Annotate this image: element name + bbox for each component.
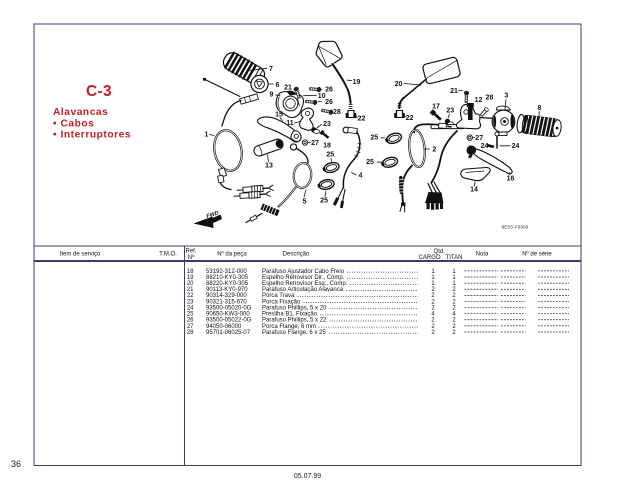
svg-text:2: 2 — [431, 330, 435, 336]
svg-text:Alavancas: Alavancas — [53, 107, 108, 118]
svg-text:28: 28 — [333, 109, 341, 116]
svg-text:Nº: Nº — [188, 254, 195, 261]
svg-text:20: 20 — [395, 81, 403, 88]
svg-text:1: 1 — [452, 269, 456, 275]
svg-text:1: 1 — [431, 275, 435, 281]
svg-text:Item de serviço: Item de serviço — [60, 252, 101, 258]
svg-text:Nº de série: Nº de série — [522, 251, 552, 258]
svg-text:2: 2 — [452, 318, 456, 324]
svg-text:2: 2 — [452, 305, 456, 311]
svg-text:4: 4 — [358, 172, 362, 179]
svg-text:90650-KW3-000: 90650-KW3-000 — [206, 312, 250, 318]
svg-text:27: 27 — [187, 324, 194, 330]
svg-text:Parafuso Articulação Alavanca: Parafuso Articulação Alavanca — [262, 287, 344, 293]
svg-text:88220-KY0-305: 88220-KY0-305 — [206, 281, 249, 287]
svg-text:13: 13 — [265, 163, 273, 170]
svg-text:23: 23 — [446, 108, 454, 115]
svg-text:3: 3 — [504, 93, 508, 100]
svg-text:21: 21 — [284, 85, 292, 92]
svg-text:95701-06025-07: 95701-06025-07 — [206, 330, 251, 336]
svg-text:Nº da peça: Nº da peça — [217, 251, 247, 258]
svg-text:93500-05022-0G: 93500-05022-0G — [206, 318, 252, 324]
svg-text:25: 25 — [366, 159, 374, 166]
svg-text:1: 1 — [452, 281, 456, 287]
svg-text:4: 4 — [452, 312, 456, 318]
svg-text:11: 11 — [286, 120, 294, 127]
svg-text:2: 2 — [452, 324, 456, 330]
svg-text:2: 2 — [431, 318, 435, 324]
svg-text:25: 25 — [187, 312, 194, 318]
svg-text:17: 17 — [432, 103, 440, 110]
svg-text:20: 20 — [187, 281, 194, 287]
svg-text:53192-312-000: 53192-312-000 — [206, 269, 247, 275]
svg-text:• Interruptores: • Interruptores — [53, 130, 131, 141]
svg-text:2: 2 — [431, 293, 435, 299]
svg-text:8E03-F0300: 8E03-F0300 — [502, 225, 529, 230]
svg-text:25: 25 — [370, 135, 378, 142]
svg-text:Parafuso Ajustador Cabo Freio: Parafuso Ajustador Cabo Freio — [262, 269, 345, 275]
svg-text:14: 14 — [470, 187, 478, 194]
svg-text:27: 27 — [475, 135, 483, 142]
svg-text:26: 26 — [325, 86, 333, 93]
svg-text:2: 2 — [452, 293, 456, 299]
svg-text:23: 23 — [323, 121, 331, 128]
svg-text:Porca Trava: Porca Trava — [262, 293, 295, 299]
svg-text:2: 2 — [452, 287, 456, 293]
svg-text:25: 25 — [320, 198, 328, 205]
svg-text:Parafuso Phillips, 5 x 22: Parafuso Phillips, 5 x 22 — [262, 318, 327, 324]
svg-text:1: 1 — [452, 275, 456, 281]
svg-text:1: 1 — [431, 281, 435, 287]
svg-text:24: 24 — [187, 305, 194, 311]
svg-text:7: 7 — [269, 66, 273, 73]
svg-text:T.M.O.: T.M.O. — [159, 252, 177, 258]
svg-text:23: 23 — [187, 299, 194, 305]
svg-text:CARGO: CARGO — [419, 255, 441, 261]
svg-text:36: 36 — [11, 459, 21, 469]
svg-text:19: 19 — [187, 275, 194, 281]
svg-text:6: 6 — [276, 82, 280, 89]
svg-text:Presilha B1, Fixação: Presilha B1, Fixação — [262, 312, 318, 318]
svg-text:TITAN: TITAN — [446, 255, 463, 261]
svg-text:2: 2 — [452, 330, 456, 336]
svg-text:94050-06000: 94050-06000 — [206, 324, 242, 330]
svg-text:Ref.: Ref. — [185, 249, 196, 255]
svg-text:22: 22 — [406, 115, 414, 122]
svg-text:Espelho Retrovisor Dir., Comp.: Espelho Retrovisor Dir., Comp. — [262, 275, 345, 281]
svg-text:2: 2 — [452, 299, 456, 305]
svg-text:24: 24 — [481, 143, 489, 150]
svg-text:88210-KY0-305: 88210-KY0-305 — [206, 275, 249, 281]
svg-text:15: 15 — [275, 111, 283, 118]
svg-text:12: 12 — [475, 97, 483, 104]
svg-text:21: 21 — [450, 88, 458, 95]
svg-text:90321-315-670: 90321-315-670 — [206, 299, 247, 305]
svg-text:Parafuso Flange, 6 x 25: Parafuso Flange, 6 x 25 — [262, 330, 326, 336]
svg-text:22: 22 — [187, 293, 194, 299]
svg-text:2: 2 — [431, 305, 435, 311]
svg-text:18: 18 — [323, 143, 331, 150]
svg-text:19: 19 — [353, 79, 361, 86]
svg-text:8: 8 — [537, 105, 541, 112]
svg-text:2: 2 — [432, 146, 436, 153]
svg-text:Nota: Nota — [476, 252, 489, 258]
svg-text:25: 25 — [326, 152, 334, 159]
svg-text:26: 26 — [187, 318, 194, 324]
svg-text:93500-05020-0G: 93500-05020-0G — [206, 305, 252, 311]
svg-text:Porca Flange, 6 mm: Porca Flange, 6 mm — [262, 324, 316, 330]
svg-text:Parafuso Phillips, 5 x 20: Parafuso Phillips, 5 x 20 — [262, 305, 327, 311]
svg-text:26: 26 — [325, 99, 333, 106]
svg-text:05.07.99: 05.07.99 — [294, 473, 321, 480]
svg-text:4: 4 — [431, 312, 435, 318]
svg-text:16: 16 — [507, 175, 515, 182]
svg-text:Porca Fixação: Porca Fixação — [262, 299, 301, 305]
svg-text:1: 1 — [205, 132, 209, 139]
svg-text:5: 5 — [303, 199, 307, 206]
svg-text:2: 2 — [431, 299, 435, 305]
svg-text:2: 2 — [431, 287, 435, 293]
svg-text:18: 18 — [187, 269, 194, 275]
svg-text:C-3: C-3 — [86, 83, 112, 100]
svg-text:24: 24 — [512, 143, 520, 150]
svg-text:21: 21 — [187, 287, 194, 293]
svg-text:2: 2 — [431, 324, 435, 330]
svg-text:1: 1 — [431, 269, 435, 275]
svg-text:Espelho Retrovisor Esq., Comp.: Espelho Retrovisor Esq., Comp. — [262, 281, 348, 287]
svg-text:28: 28 — [187, 330, 194, 336]
svg-text:27: 27 — [311, 140, 319, 147]
svg-text:90314-329-000: 90314-329-000 — [206, 293, 247, 299]
svg-text:9: 9 — [270, 92, 274, 99]
svg-text:22: 22 — [358, 115, 366, 122]
svg-text:90113-KY0-970: 90113-KY0-970 — [206, 287, 248, 293]
svg-text:28: 28 — [486, 94, 494, 101]
svg-text:• Cabos: • Cabos — [53, 118, 94, 129]
svg-text:Descrição: Descrição — [283, 252, 310, 258]
